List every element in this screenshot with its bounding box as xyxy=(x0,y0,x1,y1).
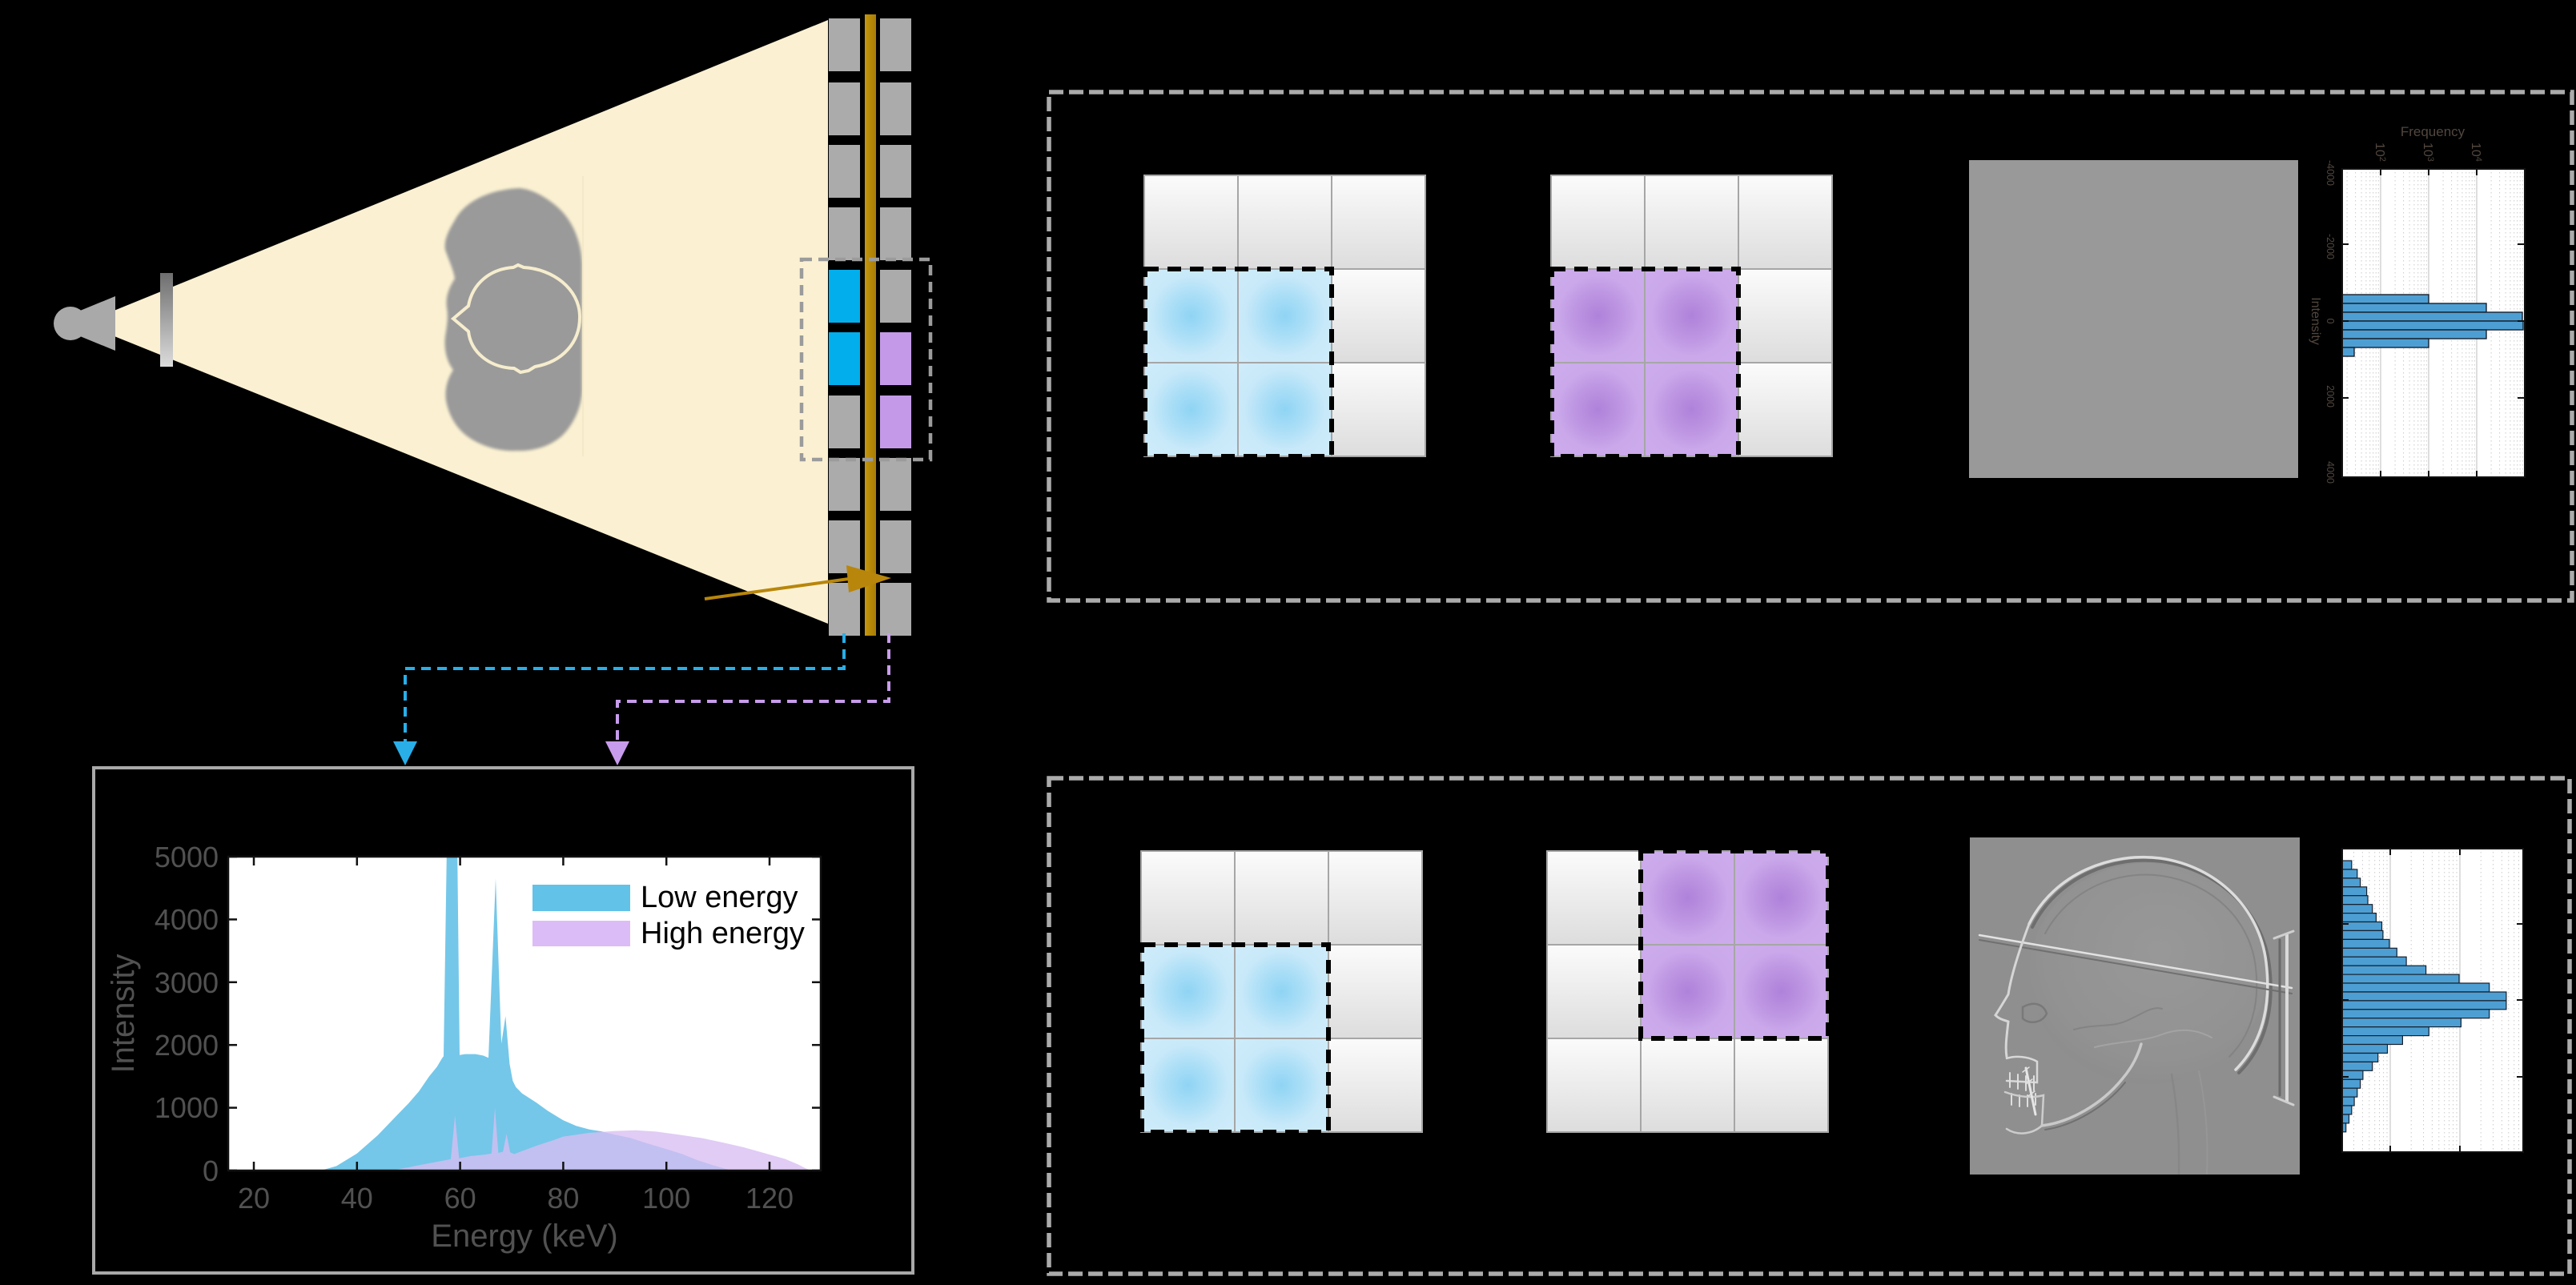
svg-text:1000: 1000 xyxy=(155,1091,219,1124)
svg-text:-4000: -4000 xyxy=(2325,160,2336,186)
svg-text:4000: 4000 xyxy=(155,903,219,936)
svg-text:104: 104 xyxy=(2469,143,2483,162)
svg-text:100: 100 xyxy=(642,1182,690,1215)
svg-text:2000: 2000 xyxy=(2325,385,2336,408)
svg-text:Frequency: Frequency xyxy=(2401,124,2465,139)
svg-text:0: 0 xyxy=(203,1154,219,1187)
svg-text:Intensity: Intensity xyxy=(106,954,141,1074)
svg-text:0: 0 xyxy=(2325,319,2336,324)
svg-text:2000: 2000 xyxy=(155,1029,219,1062)
svg-text:Energy (keV): Energy (keV) xyxy=(431,1219,617,1254)
svg-text:4000: 4000 xyxy=(2325,461,2336,484)
svg-text:Low energy: Low energy xyxy=(641,881,798,914)
svg-text:Intensity: Intensity xyxy=(2309,297,2322,345)
svg-text:High energy: High energy xyxy=(641,917,805,950)
svg-text:20: 20 xyxy=(238,1182,270,1215)
svg-text:40: 40 xyxy=(341,1182,373,1215)
svg-text:103: 103 xyxy=(2421,143,2435,162)
svg-text:5000: 5000 xyxy=(155,841,219,873)
svg-text:3000: 3000 xyxy=(155,966,219,999)
svg-text:80: 80 xyxy=(547,1182,579,1215)
svg-text:60: 60 xyxy=(444,1182,476,1215)
svg-text:120: 120 xyxy=(745,1182,794,1215)
svg-text:102: 102 xyxy=(2373,143,2387,162)
svg-text:-2000: -2000 xyxy=(2325,234,2336,259)
